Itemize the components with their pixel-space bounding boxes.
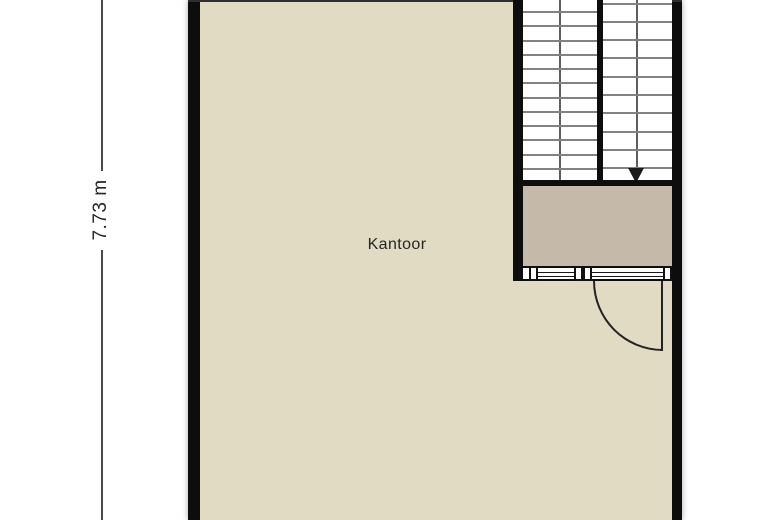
dimension-label: 7.73 m [90,179,112,240]
stair-tread-line [603,149,672,151]
window-post [583,266,592,281]
stairs-right-flight [603,0,672,180]
stair-tread-line [603,112,672,114]
stair-tread-line [603,3,672,5]
stair-tread-line [603,39,672,41]
stair-tread-line [523,40,597,42]
wall-right [672,0,682,520]
stair-tread-line [603,94,672,96]
stair-tread-line [523,54,597,56]
stairs-left-flight [523,0,597,180]
stair-tread-line [523,68,597,70]
stair-tread-line [523,11,597,13]
stair-landing [523,186,672,266]
glazing-line [592,272,663,274]
window-post [663,266,672,281]
dimension-line-upper [101,0,103,171]
stair-stringer-line [636,0,638,168]
stair-tread-line [523,139,597,141]
glazing-line [592,276,663,278]
glazed-partition [523,266,672,281]
dimension-line-lower [101,250,103,520]
stair-tread-line [523,82,597,84]
stair-tread-line [603,21,672,23]
window-post [529,266,538,281]
stair-tread-line [523,168,597,170]
stair-tread-line [603,76,672,78]
stair-tread-line [603,57,672,59]
room-label: Kantoor [368,236,427,254]
door-leaf [661,281,663,351]
wall-stairwell-left [513,0,523,266]
stair-tread-line [523,154,597,156]
stair-tread-line [523,97,597,99]
stair-tread-line [603,131,672,133]
stair-tread-line [523,111,597,113]
stair-tread-line [523,25,597,27]
window-post [574,266,583,281]
floorplan-canvas: { "floorplan": { "dimension": { "label":… [0,0,780,520]
glazing-line [538,272,574,274]
wall-left [188,0,200,520]
glazing-line [538,276,574,278]
stair-tread-line [523,125,597,127]
